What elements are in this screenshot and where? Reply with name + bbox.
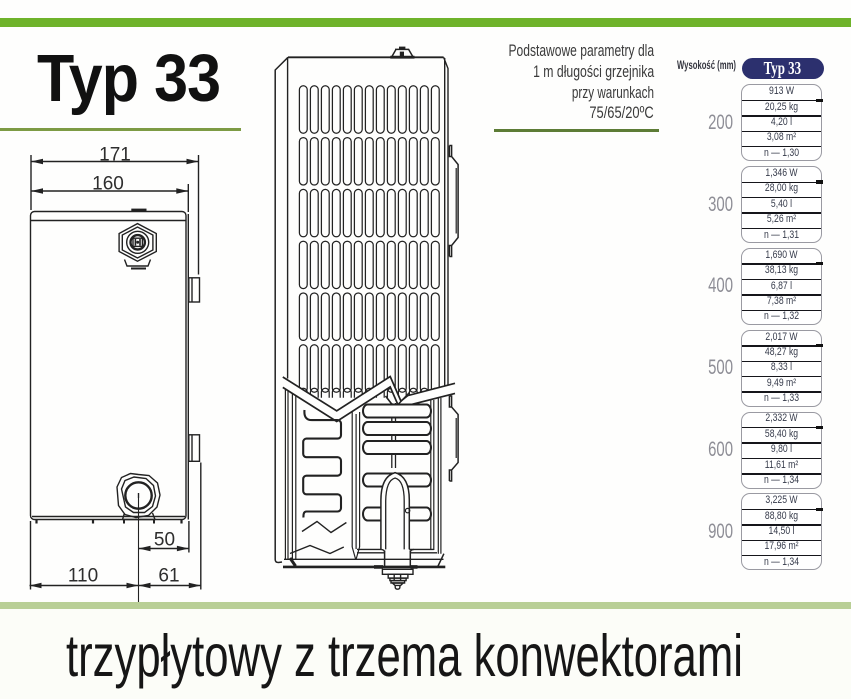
svg-text:61: 61 [158,566,179,587]
svg-text:110: 110 [68,566,98,587]
svg-text:171: 171 [99,145,131,166]
svg-text:50: 50 [154,530,175,551]
